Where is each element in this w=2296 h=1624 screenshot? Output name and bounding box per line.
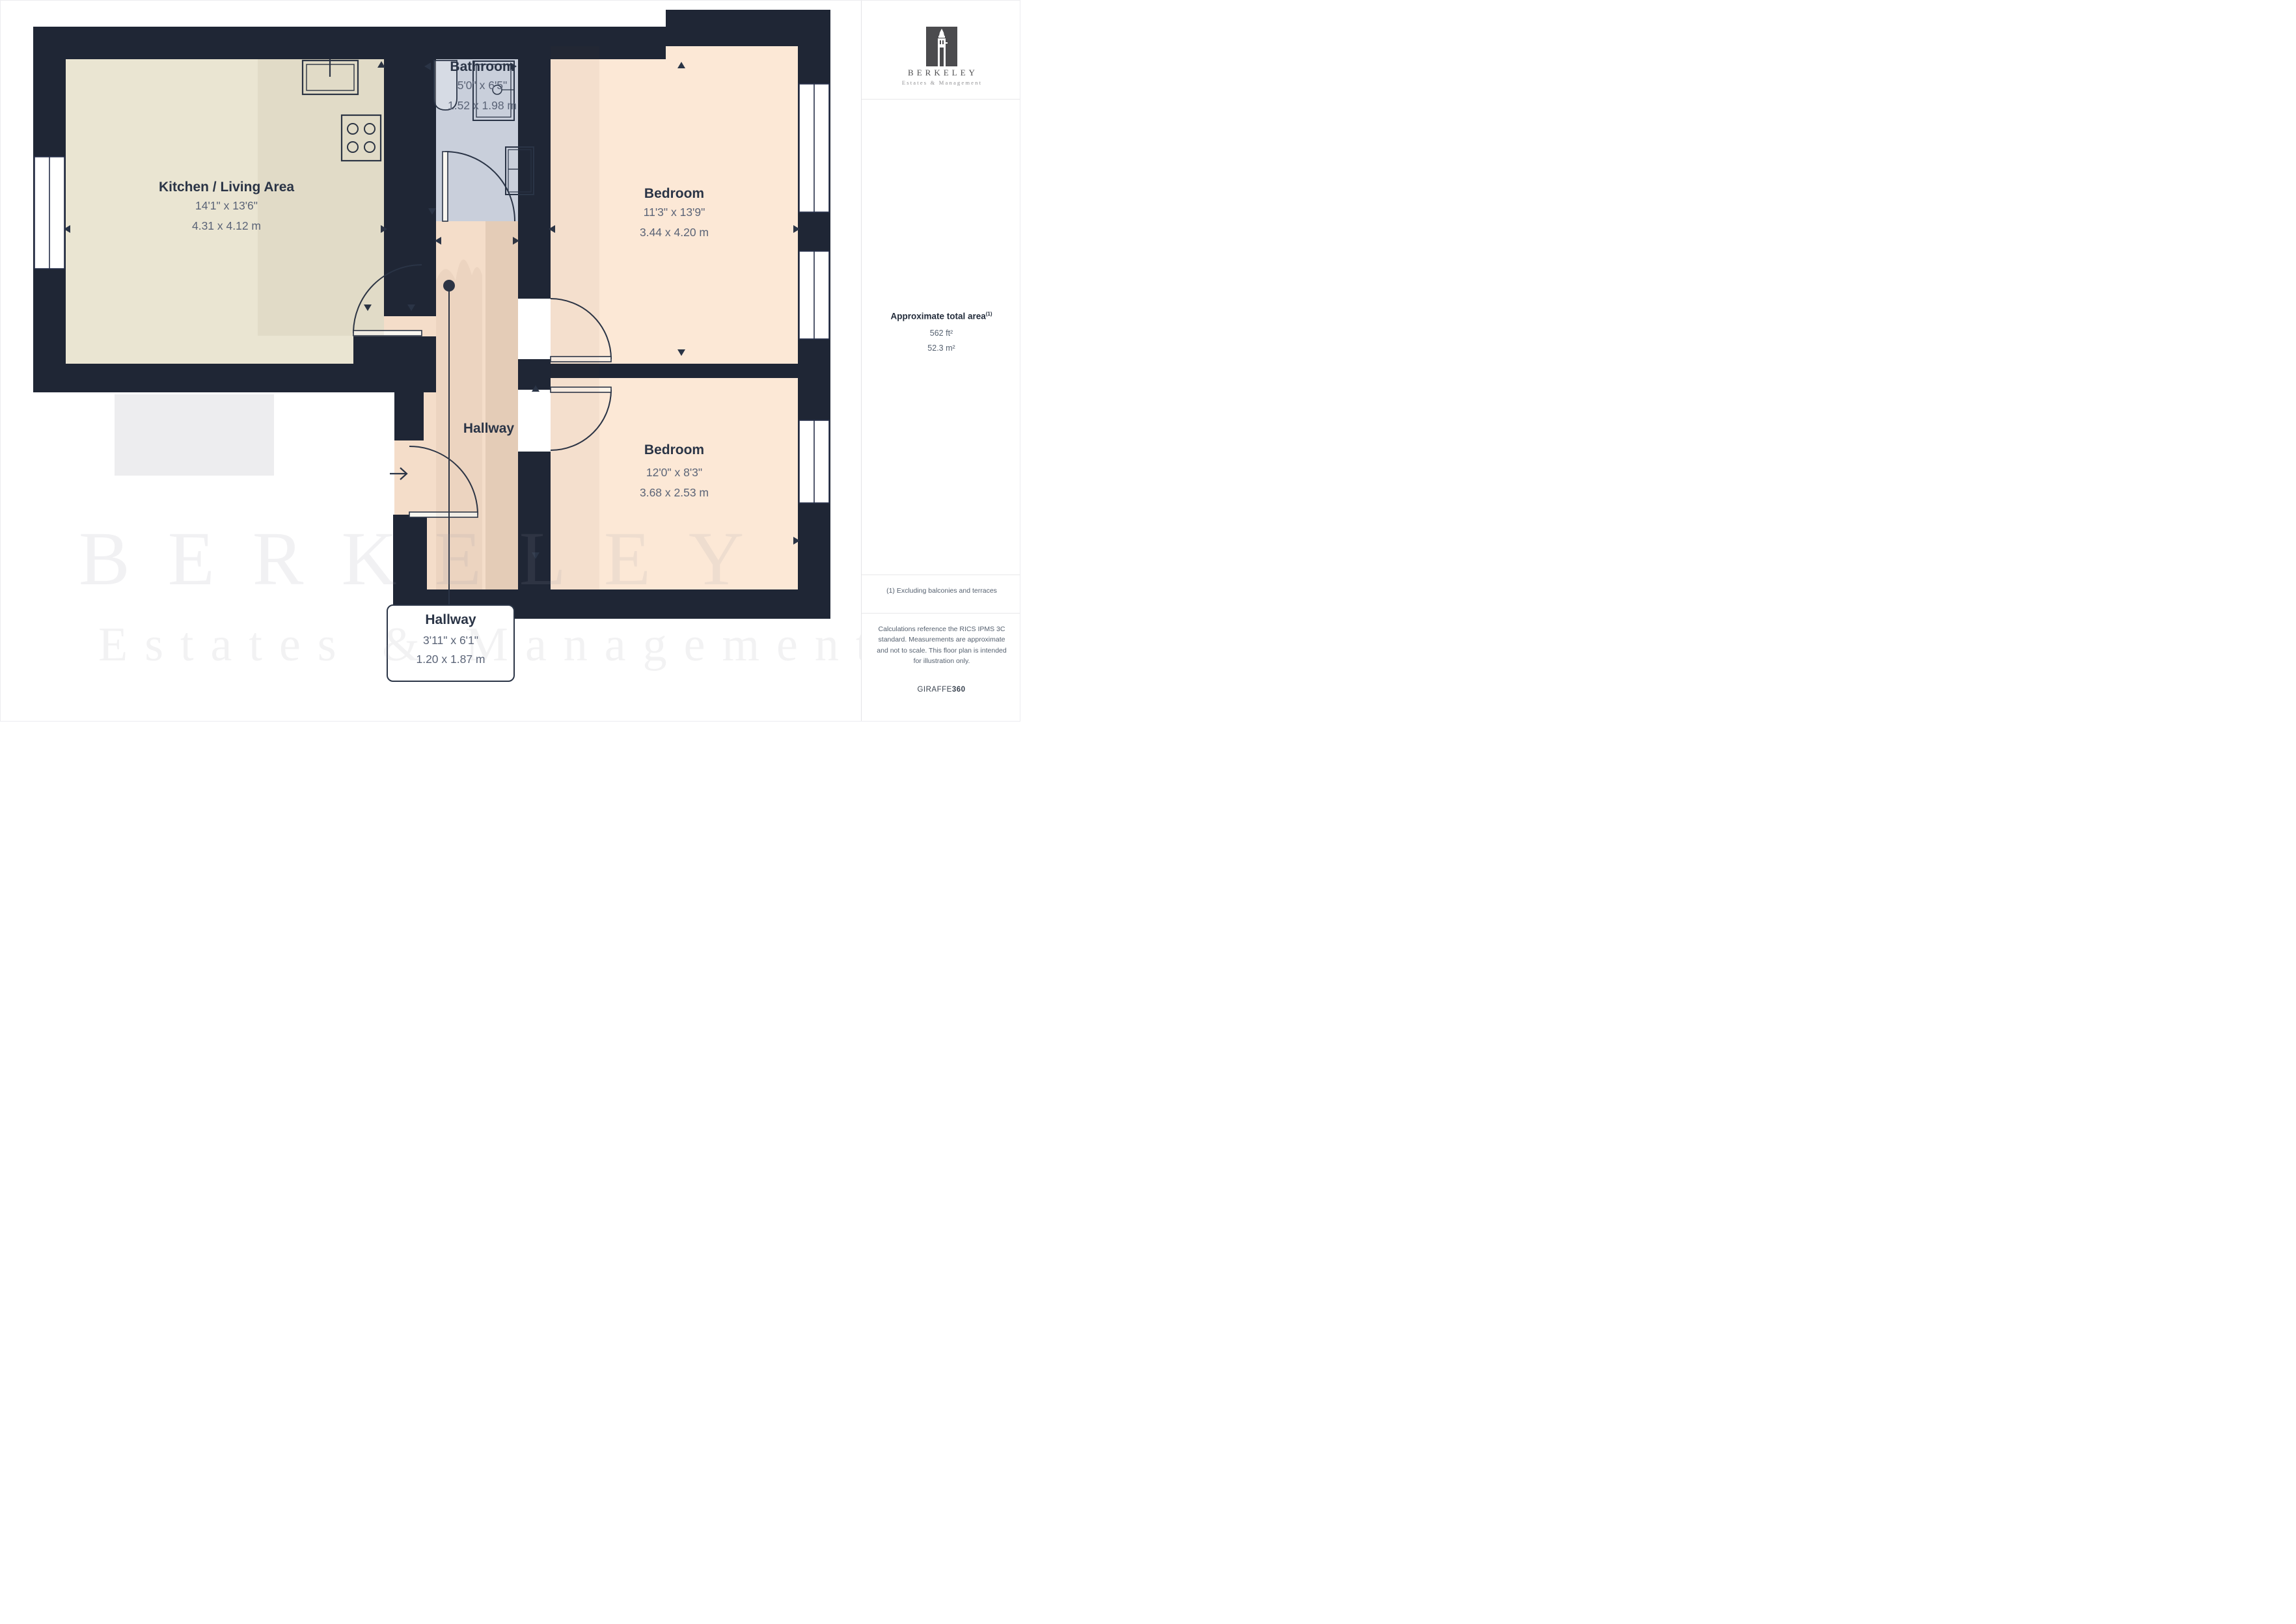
watermark-tower-silhouette [436,260,482,589]
hallway-callout-imperial: 3'11" x 6'1" [388,631,513,650]
floorplan-canvas: Kitchen / Living Area 14'1" x 13'6" 4.31… [0,0,1020,722]
brand-name: BERKELEY [862,68,1020,78]
wall-hallway-east-middle [518,359,551,390]
rics-disclaimer: Calculations reference the RICS IPMS 3C … [873,624,1010,666]
berkeley-logo [926,27,957,66]
watermark-tower-base [115,394,274,476]
total-area-imperial: 562 ft² [862,329,1020,338]
sidebar-divider [862,613,1020,614]
watermark-patch [258,59,384,336]
watermark-patch [485,221,518,589]
wall-kitchen-bottom [33,364,353,392]
balconies-footnote: (1) Excluding balconies and terraces [868,587,1015,595]
giraffe-360-text: 360 [952,686,966,694]
watermark-patch [551,46,599,589]
hallway-callout-title: Hallway [388,612,513,629]
toilet-icon [434,61,457,110]
wall-vestibule-left-upper [394,392,424,440]
hallway-callout: Hallway 3'11" x 6'1" 1.20 x 1.87 m [387,604,515,682]
brand-subtitle: Estates & Management [862,79,1020,86]
wall-hallway-east-lower [518,452,551,589]
bathroom-door-leaf [443,152,448,221]
sidebar-divider [862,99,1020,100]
giraffe360-logo: GIRAFFE360 [862,686,1020,694]
giraffe-text: GIRAFFE [917,686,951,694]
info-sidebar: BERKELEY Estates & Management Approximat… [861,1,1020,722]
clock-tower-icon [926,27,957,66]
wall-kitchen-bathroom [384,59,436,316]
total-area-text: Approximate total area [890,312,985,321]
sidebar-divider [862,575,1020,575]
wall-kitchen-doorway [353,336,436,392]
total-area-metric: 52.3 m² [862,344,1020,353]
total-area-label: Approximate total area(1) [862,311,1020,321]
total-area-footnote-ref: (1) [986,311,992,317]
hallway-callout-metric: 1.20 x 1.87 m [388,650,513,669]
